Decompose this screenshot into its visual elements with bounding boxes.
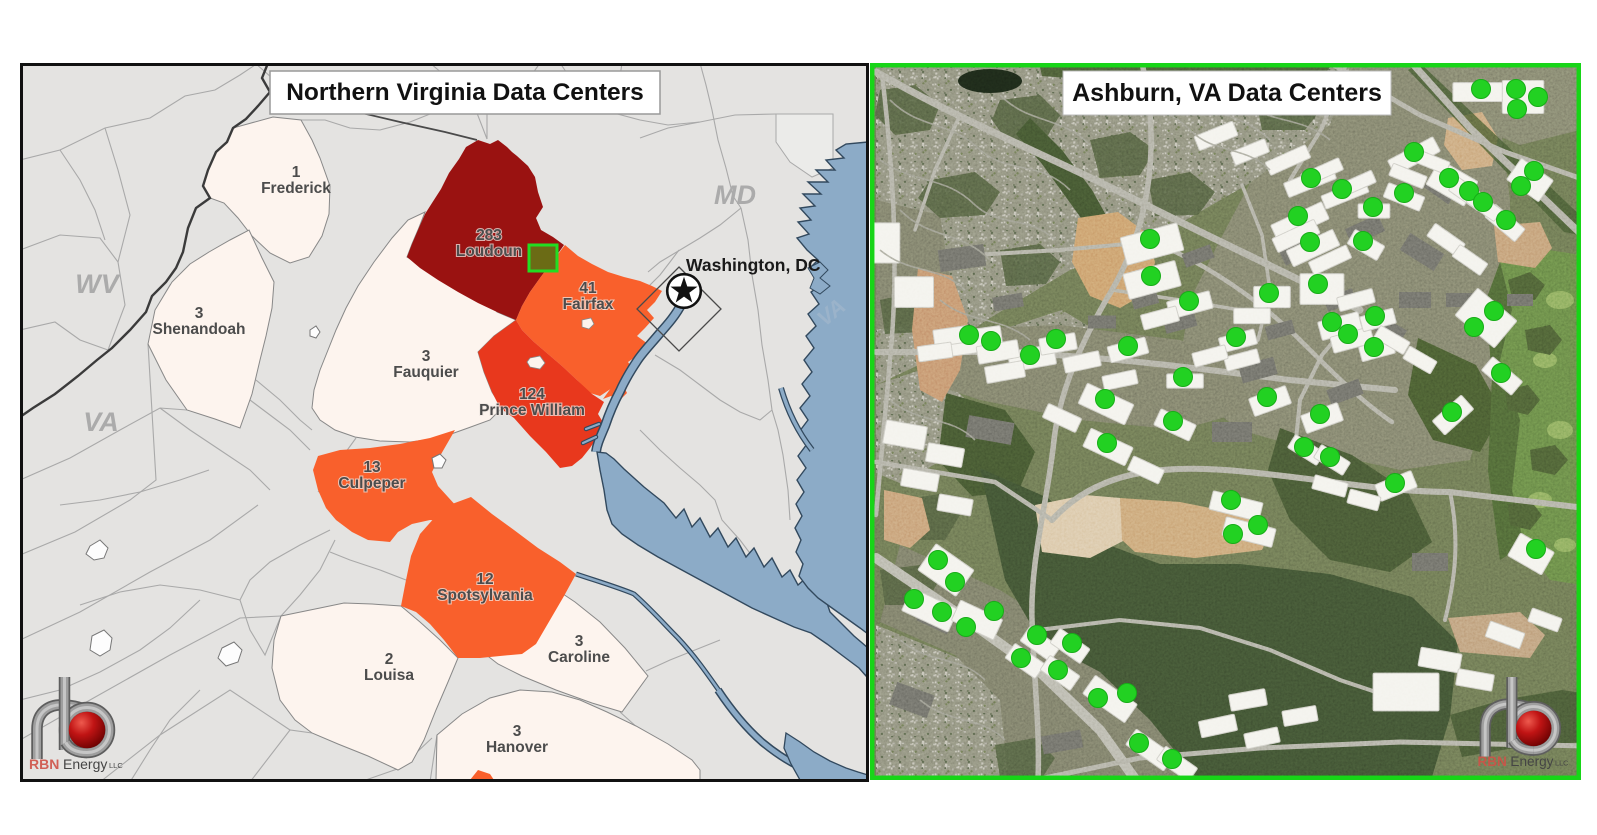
svg-text:Northern Virginia Data Centers: Northern Virginia Data Centers — [286, 79, 644, 106]
svg-text:Prince William: Prince William — [479, 402, 585, 419]
svg-text:Hanover: Hanover — [486, 739, 548, 756]
svg-text:MD: MD — [714, 180, 756, 210]
svg-text:Caroline: Caroline — [548, 649, 610, 666]
svg-text:124: 124 — [519, 386, 545, 403]
svg-text:Shenandoah: Shenandoah — [152, 321, 245, 338]
svg-text:RBN: RBN — [29, 756, 59, 772]
svg-text:283: 283 — [476, 227, 502, 244]
svg-text:13: 13 — [363, 459, 381, 476]
svg-text:2: 2 — [385, 651, 394, 668]
svg-text:1: 1 — [292, 164, 301, 181]
svg-text:3: 3 — [513, 723, 522, 740]
svg-text:3: 3 — [575, 633, 584, 650]
svg-text:Spotsylvania: Spotsylvania — [437, 587, 533, 604]
svg-text:LLC: LLC — [1555, 758, 1568, 767]
svg-text:Frederick: Frederick — [261, 180, 331, 197]
svg-text:RBN: RBN — [1477, 754, 1506, 769]
svg-text:LLC: LLC — [109, 761, 123, 770]
svg-text:Culpeper: Culpeper — [338, 475, 405, 492]
svg-text:12: 12 — [476, 571, 493, 588]
svg-text:Washington, DC: Washington, DC — [686, 255, 821, 275]
svg-text:Energy: Energy — [1510, 754, 1553, 769]
svg-text:Fairfax: Fairfax — [563, 296, 614, 313]
svg-text:41: 41 — [579, 280, 597, 297]
svg-text:Louisa: Louisa — [364, 667, 414, 684]
svg-text:VA: VA — [83, 407, 119, 437]
svg-text:Energy: Energy — [63, 756, 107, 772]
svg-text:Fauquier: Fauquier — [393, 364, 458, 381]
svg-text:WV: WV — [75, 269, 120, 299]
svg-text:3: 3 — [422, 348, 431, 365]
svg-text:3: 3 — [195, 305, 204, 322]
svg-text:Ashburn, VA Data Centers: Ashburn, VA Data Centers — [1072, 79, 1382, 107]
svg-text:Loudoun: Loudoun — [456, 243, 522, 260]
